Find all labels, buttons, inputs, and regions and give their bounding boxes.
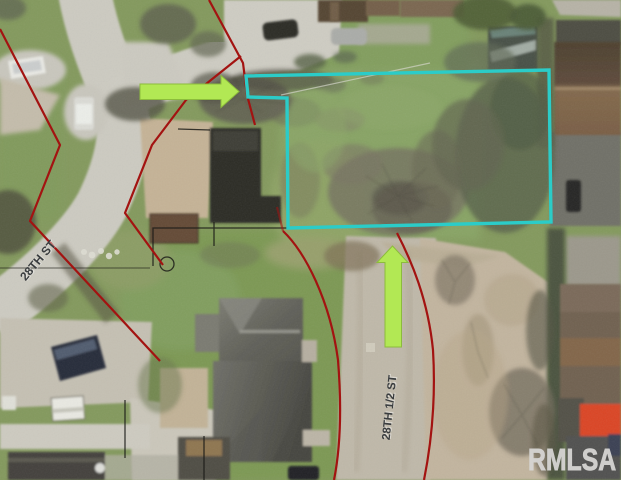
svg-text:RMLSA: RMLSA (528, 442, 616, 476)
